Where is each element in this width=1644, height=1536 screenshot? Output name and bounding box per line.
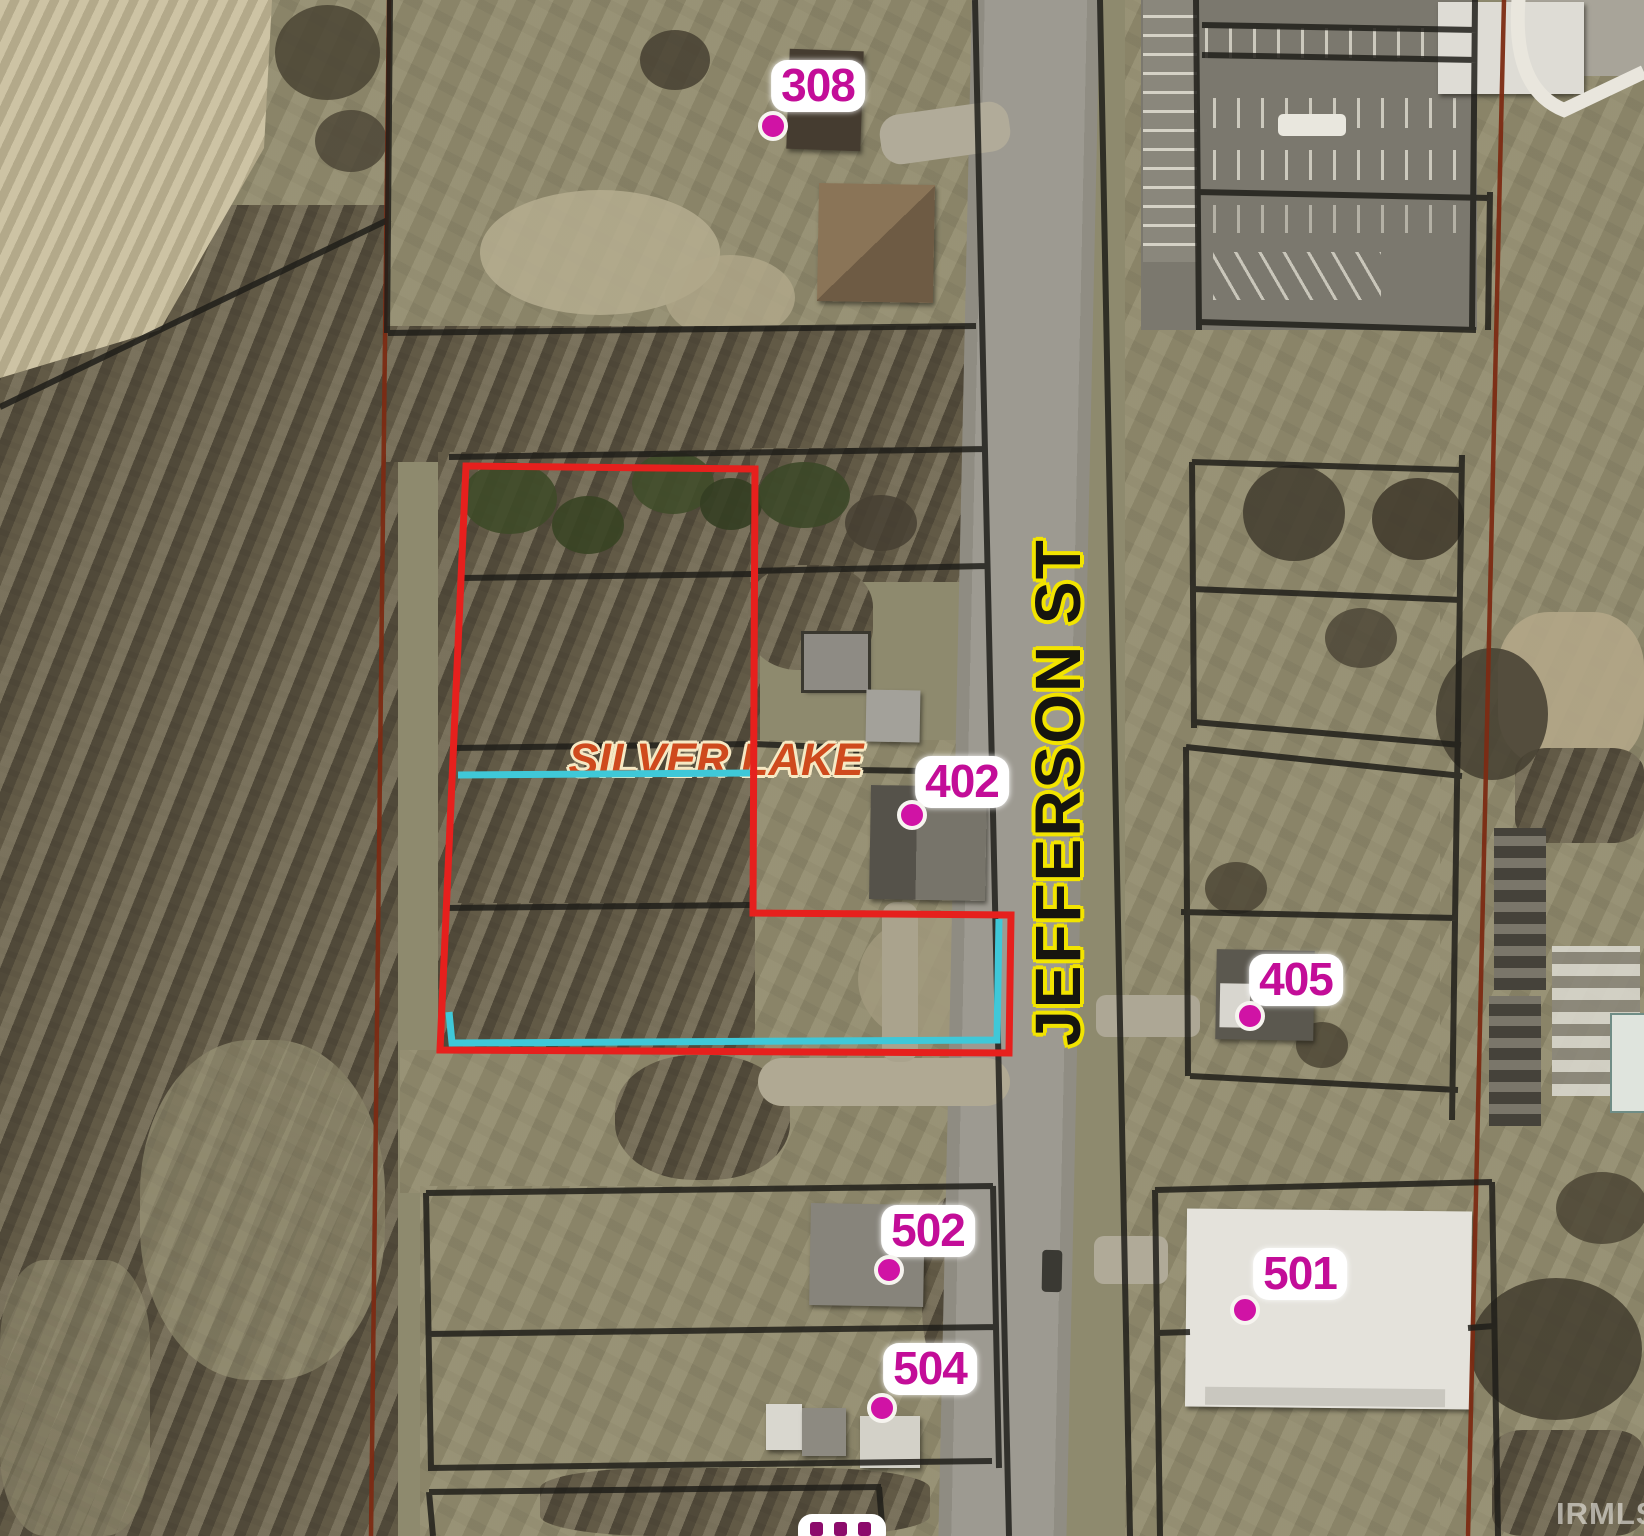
clipped-digit xyxy=(834,1522,847,1536)
parcel-dot-501 xyxy=(1230,1295,1260,1325)
parcel-label-402: 402 xyxy=(915,756,1009,808)
parcel-dot-504 xyxy=(867,1393,897,1423)
clipped-digit xyxy=(858,1522,871,1536)
aerial-parcel-map: SILVER LAKE JEFFERSON ST 308 402 405 501… xyxy=(0,0,1644,1536)
parcel-dot-308 xyxy=(758,111,788,141)
parcel-dot-502 xyxy=(874,1255,904,1285)
parcel-label-405: 405 xyxy=(1249,954,1343,1006)
irmls-watermark: IRMLS xyxy=(1556,1496,1644,1532)
parcel-label-308: 308 xyxy=(771,60,865,112)
parcel-label-504: 504 xyxy=(883,1343,977,1395)
street-name-label: JEFFERSON ST xyxy=(1021,538,1095,1046)
parcel-label-502: 502 xyxy=(881,1205,975,1257)
parcel-label-clipped xyxy=(798,1514,886,1536)
parcel-label-501: 501 xyxy=(1253,1248,1347,1300)
parcel-dot-402 xyxy=(897,800,927,830)
clipped-digit xyxy=(810,1522,823,1536)
highlight-overlay xyxy=(0,0,1644,1536)
parcel-dot-405 xyxy=(1235,1001,1265,1031)
